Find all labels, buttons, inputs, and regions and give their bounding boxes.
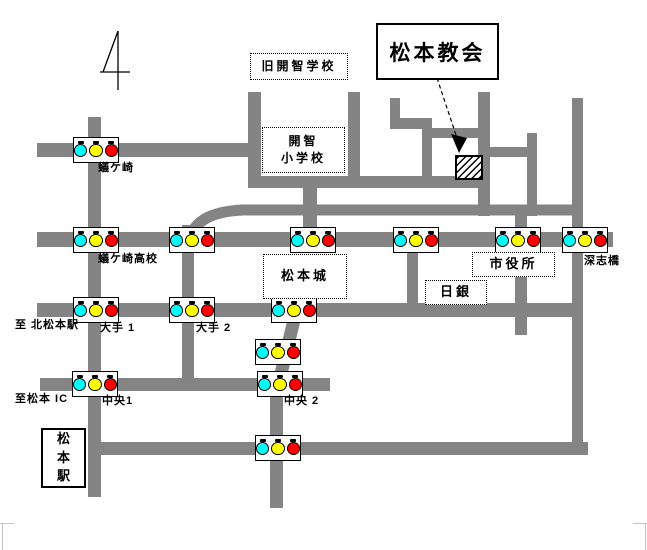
landmark-kyu-kaichi-gakko: 旧開智学校 — [250, 53, 348, 80]
landmark-matsumoto-eki: 松 本 駅 — [41, 428, 86, 488]
signal-shiyakusho-west — [495, 227, 541, 253]
traffic-lamp-yellow-icon — [89, 234, 102, 247]
label-matsumoto-ic: 至松本 IC — [15, 393, 68, 405]
traffic-lamp-yellow-icon — [89, 304, 102, 317]
traffic-lamp-yellow-icon — [271, 346, 284, 359]
label-fukashi-bashi: 深志橋 — [584, 255, 620, 267]
traffic-lamp-cyan-icon — [563, 234, 576, 247]
landmark-kaichi-shogakko: 開智 小学校 — [262, 127, 345, 173]
road-kaichi-west-vertical — [248, 92, 261, 182]
traffic-lamp-red-icon — [105, 144, 118, 157]
traffic-lamp-yellow-icon — [511, 234, 524, 247]
traffic-lamp-yellow-icon — [287, 304, 300, 317]
traffic-lamp-yellow-icon — [89, 144, 102, 157]
traffic-lamp-red-icon — [105, 234, 118, 247]
signal-ote2 — [169, 297, 215, 323]
traffic-lamp-cyan-icon — [291, 234, 304, 247]
traffic-lamp-red-icon — [594, 234, 607, 247]
traffic-lamp-cyan-icon — [170, 234, 183, 247]
traffic-lamp-cyan-icon — [496, 234, 509, 247]
traffic-lamp-red-icon — [104, 378, 117, 391]
traffic-lamp-red-icon — [425, 234, 438, 247]
signal-arigasaki-koko — [73, 227, 119, 253]
church-title: 松本教会 — [390, 37, 486, 67]
traffic-lamp-cyan-icon — [74, 144, 87, 157]
label-kita-matsumoto: 至 北松本駅 — [15, 319, 79, 331]
traffic-lamp-yellow-icon — [185, 234, 198, 247]
traffic-lamp-red-icon — [105, 304, 118, 317]
label-arigasaki: 蟻ケ崎 — [98, 162, 134, 174]
north-symbol-line-1 — [103, 31, 118, 72]
traffic-lamp-yellow-icon — [409, 234, 422, 247]
traffic-lamp-cyan-icon — [256, 442, 269, 455]
road-church-east-vertical — [527, 133, 537, 216]
landmark-nichigin: 日銀 — [425, 280, 487, 305]
signal-castle-west — [290, 227, 336, 253]
traffic-lamp-red-icon — [527, 234, 540, 247]
traffic-lamp-cyan-icon — [74, 234, 87, 247]
traffic-lamp-cyan-icon — [272, 304, 285, 317]
traffic-lamp-yellow-icon — [306, 234, 319, 247]
traffic-lamp-cyan-icon — [74, 304, 87, 317]
traffic-lamp-red-icon — [201, 234, 214, 247]
road-jog-vertical-2 — [422, 127, 432, 188]
traffic-lamp-red-icon — [287, 346, 300, 359]
traffic-lamp-red-icon — [289, 378, 302, 391]
signal-nichigin-north — [393, 227, 439, 253]
label-arigasaki-koko: 蟻ケ崎高校 — [98, 253, 158, 265]
signal-arigasaki — [73, 137, 119, 163]
traffic-lamp-red-icon — [322, 234, 335, 247]
label-chuo-2: 中央 2 — [284, 395, 319, 407]
landmark-shiyakusho: 市役所 — [472, 252, 555, 277]
label-ote-1: 大手 1 — [100, 322, 135, 334]
traffic-lamp-red-icon — [201, 304, 214, 317]
signal-fukashibashi — [562, 227, 608, 253]
road-kaichi-east-vertical — [348, 92, 360, 182]
traffic-lamp-yellow-icon — [273, 378, 286, 391]
traffic-lamp-cyan-icon — [73, 378, 86, 391]
signal-castle-south — [271, 297, 317, 323]
traffic-lamp-yellow-icon — [271, 442, 284, 455]
traffic-lamp-red-icon — [303, 304, 316, 317]
traffic-lamp-red-icon — [287, 442, 300, 455]
traffic-lamp-yellow-icon — [88, 378, 101, 391]
signal-ote2-north — [169, 227, 215, 253]
traffic-lamp-cyan-icon — [256, 346, 269, 359]
church-location-hatched-marker — [455, 155, 483, 180]
matsumoto-church-access-map: 松本教会 蟻ケ崎蟻ケ崎高校至 北松本駅大手 1大手 2至松本 IC中央1中央 2… — [0, 0, 647, 550]
signal-chuo2 — [257, 371, 303, 397]
label-ote-2: 大手 2 — [196, 322, 231, 334]
traffic-lamp-yellow-icon — [185, 304, 198, 317]
road-arigasaki-road — [37, 143, 251, 157]
traffic-lamp-cyan-icon — [394, 234, 407, 247]
signal-ote1 — [73, 297, 119, 323]
traffic-lamp-cyan-icon — [170, 304, 183, 317]
signal-station-front — [255, 435, 301, 461]
traffic-lamp-cyan-icon — [258, 378, 271, 391]
road-river-road — [572, 98, 583, 455]
signal-chuo1 — [72, 371, 118, 397]
road-kaichi-south-road — [248, 176, 488, 188]
road-church-west-vertical — [478, 92, 490, 216]
signal-mid-diagonal — [255, 339, 301, 365]
label-chuo-1: 中央1 — [102, 395, 133, 407]
landmark-matsumoto-jo: 松本城 — [263, 254, 347, 299]
traffic-lamp-yellow-icon — [578, 234, 591, 247]
road-station-front-road — [88, 442, 588, 455]
church-title-box: 松本教会 — [376, 23, 499, 80]
